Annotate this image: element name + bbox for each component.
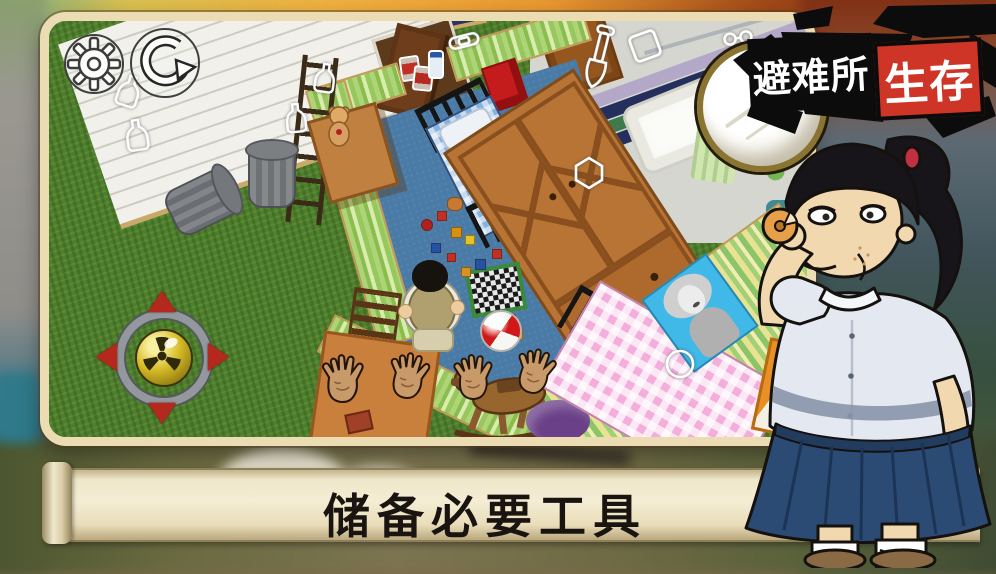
outline-hint-hexagon[interactable] <box>572 156 606 190</box>
cartoon-hand <box>447 349 498 403</box>
toy-ball-small <box>421 219 433 231</box>
character-woman <box>740 128 996 568</box>
joystick-knob[interactable] <box>135 329 193 387</box>
joystick-arrow-down[interactable] <box>148 403 176 424</box>
child-hair <box>412 260 448 292</box>
shoe <box>805 550 865 568</box>
teddy-bear <box>322 102 354 148</box>
caption-scroll-roll <box>42 462 72 544</box>
toy-block <box>492 249 502 259</box>
wardrobe-knob <box>548 192 558 202</box>
logo-part2-text: 生存 <box>882 45 975 114</box>
child-pants <box>412 328 454 352</box>
joystick-arrow-left[interactable] <box>96 343 117 371</box>
cartoon-hand <box>316 350 368 406</box>
donut-hole <box>775 221 785 231</box>
outline-hint-circle[interactable] <box>664 348 696 380</box>
shoe <box>871 550 935 568</box>
logo-part1-text: 避难所 <box>751 42 871 103</box>
restart-icon <box>132 30 198 96</box>
scrunchie <box>904 147 920 169</box>
gear-icon <box>66 36 122 92</box>
drawer-knob <box>649 271 660 282</box>
logo-part1-box: 避难所 <box>747 33 875 113</box>
toy-block <box>465 235 475 245</box>
joystick-arrow-up[interactable] <box>148 291 176 312</box>
trash-can-standing <box>248 146 296 208</box>
blurred-chair <box>0 372 38 442</box>
radiation-trefoil-icon <box>135 329 189 383</box>
child-top-view <box>396 256 466 348</box>
toy-block <box>447 253 456 262</box>
toy-block <box>451 227 462 238</box>
settings-button[interactable] <box>64 34 124 94</box>
toy-block <box>475 259 486 270</box>
toy-block <box>437 211 447 221</box>
logo-part2-box: 生存 <box>873 37 985 121</box>
outline-hint-bottle[interactable] <box>122 116 152 153</box>
game-logo-banner: 避难所 生存 <box>733 4 996 144</box>
cartoon-hand <box>383 348 432 401</box>
found-items-group[interactable] <box>398 48 446 94</box>
trash-lid <box>245 139 299 161</box>
character-drawing <box>740 128 996 568</box>
outline-hint-bottle[interactable] <box>283 101 310 135</box>
child-arm <box>450 300 465 315</box>
toy-block <box>431 243 441 253</box>
game-viewport[interactable] <box>40 12 816 446</box>
outline-hint-bottle[interactable] <box>311 60 339 95</box>
ear <box>897 225 915 243</box>
restart-button[interactable] <box>130 28 200 98</box>
toy-figure <box>447 197 463 211</box>
movement-joystick[interactable] <box>94 289 230 425</box>
caption-text: 储备必要工具 <box>165 478 805 547</box>
found-bottle-icon[interactable] <box>428 50 444 79</box>
cartoon-hand <box>509 343 560 398</box>
joystick-arrow-right[interactable] <box>208 343 229 371</box>
toy-block <box>461 267 471 277</box>
child-arm <box>398 304 413 319</box>
